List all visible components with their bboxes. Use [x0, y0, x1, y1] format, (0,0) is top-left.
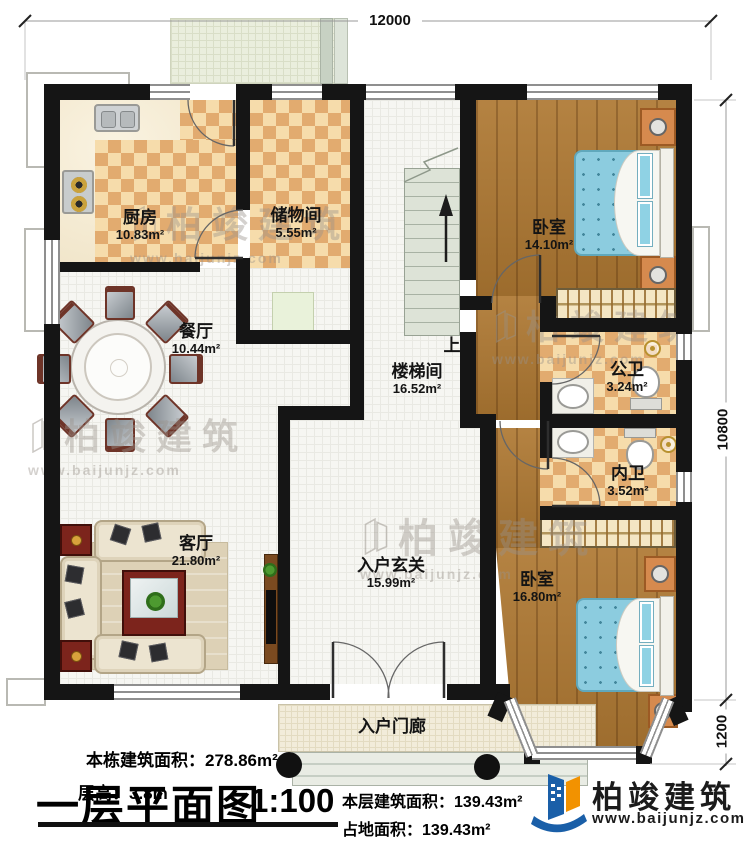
sofa-pillow: [118, 640, 138, 660]
bed-duvet: [616, 598, 660, 692]
dining-table-center: [110, 359, 128, 377]
window: [150, 84, 190, 100]
sofa-pillow: [149, 643, 169, 663]
room-label-storage: 储物间5.55m²: [271, 206, 322, 240]
kitchen-sink: [94, 104, 140, 132]
porch-column: [474, 754, 500, 780]
wall-segment: [540, 382, 552, 414]
porch: [278, 704, 596, 752]
wall-segment: [540, 318, 676, 332]
bed-headboard: [660, 596, 674, 696]
room-label-living: 客厅21.80m²: [172, 534, 220, 568]
wall-segment: [278, 406, 364, 420]
burner: [71, 177, 87, 193]
wall-segment: [236, 100, 250, 210]
stove: [62, 170, 94, 214]
sink-basin: [120, 111, 135, 128]
sofa-pillow: [65, 565, 85, 585]
window: [366, 84, 455, 100]
end-table: [60, 640, 92, 672]
room-label-porch: 入户门廊: [358, 717, 426, 737]
wall-segment: [60, 262, 200, 272]
dining-chair: [105, 286, 135, 320]
bed-headboard: [660, 148, 674, 258]
wall-segment: [44, 684, 114, 700]
dining-chair: [169, 354, 203, 384]
table-plant: [146, 592, 165, 611]
title-underline: [38, 822, 338, 827]
porch-column: [276, 752, 302, 778]
nightstand: [640, 108, 676, 146]
terrace-strip: [334, 18, 348, 84]
stairs-up-label: 上: [444, 336, 461, 356]
room-label-foyer: 入户玄关15.99m²: [357, 556, 425, 590]
brand-logo: 柏竣建筑 www.baijunjz.com: [530, 768, 742, 838]
floor-plan: 柏竣建筑 www.baijunjz.com 柏竣建筑 www.baijunjz.…: [0, 0, 750, 844]
brand-website: www.baijunjz.com: [592, 810, 745, 827]
wall-segment: [278, 420, 290, 684]
wall-segment: [236, 84, 272, 100]
watermark: 柏竣建筑 www.baijunjz.com: [28, 408, 248, 478]
window: [114, 684, 240, 700]
burner: [71, 196, 87, 212]
storage-mat: [272, 292, 314, 332]
wall-segment: [460, 332, 476, 420]
bed-pillow: [640, 602, 653, 642]
wall-segment: [540, 414, 676, 428]
wall-segment: [540, 506, 676, 520]
terrace-strip: [320, 18, 333, 84]
dimension-top: 12000: [358, 13, 422, 28]
room-label-stairwell: 楼梯间16.52m²: [392, 362, 443, 396]
footprint-stat: 占地面积：139.43m²: [342, 816, 491, 840]
wall-segment: [540, 428, 552, 458]
coffee-table: [122, 570, 186, 636]
bed-duvet: [614, 150, 660, 256]
sofa-pillow: [141, 522, 161, 542]
brand-logo-icon: [530, 768, 588, 836]
wall-segment: [236, 330, 350, 344]
sink-basin: [101, 111, 116, 128]
room-label-bath-inner: 内卫3.52m²: [607, 464, 648, 498]
end-table-knob: [71, 535, 82, 546]
wall-segment: [676, 84, 692, 712]
room-label-bath-public: 公卫3.24m²: [606, 360, 647, 394]
room-label-dining: 餐厅10.44m²: [172, 322, 220, 356]
wall-segment: [240, 684, 330, 700]
room-label-bedroom-top: 卧室14.10m²: [525, 218, 573, 252]
wall-segment: [460, 100, 476, 280]
lamp: [651, 565, 669, 583]
bay-window: [532, 746, 636, 760]
bed-pillow: [638, 154, 652, 198]
window: [272, 84, 322, 100]
nightstand: [644, 556, 676, 592]
lamp: [649, 118, 667, 136]
kitchen-entry-floor: [180, 100, 238, 140]
dimension-right-main: 10800: [716, 403, 731, 457]
wall-segment: [350, 100, 364, 420]
bath-sink: [557, 430, 589, 454]
toilet-tank: [630, 398, 662, 410]
window: [44, 240, 60, 324]
wall-segment: [322, 84, 366, 100]
stairs: [404, 168, 460, 336]
toilet-tank: [624, 428, 656, 438]
room-label-kitchen: 厨房10.83m²: [116, 208, 164, 242]
window-sill: [24, 228, 46, 332]
wall-segment: [455, 84, 527, 100]
window: [527, 84, 658, 100]
plan-scale: 1:100: [250, 782, 334, 820]
shower-head: [660, 436, 677, 453]
watermark-logo-icon: [360, 515, 392, 555]
wall-segment: [44, 84, 60, 700]
bath-sink: [557, 384, 589, 409]
end-table: [60, 524, 92, 556]
end-table-knob: [71, 651, 82, 662]
window: [676, 334, 692, 360]
watermark-logo-icon: [492, 307, 520, 343]
watermark: 柏竣建筑 www.baijunjz.com: [492, 300, 702, 367]
window-sill: [6, 678, 46, 706]
tv: [266, 590, 276, 644]
dimension-right-bay: 1200: [715, 710, 730, 754]
wall-segment: [480, 420, 496, 684]
lamp: [649, 266, 667, 284]
wall-segment: [460, 296, 492, 310]
window: [676, 472, 692, 502]
room-label-bedroom-bottom: 卧室16.80m²: [513, 570, 561, 604]
building-area-stat: 本栋建筑面积：278.86m²: [86, 746, 278, 771]
floor-area-stat: 本层建筑面积：139.43m²: [342, 788, 523, 812]
cabinet-plant: [263, 563, 277, 577]
bed-pillow: [638, 202, 652, 246]
bed-pillow: [640, 646, 653, 686]
